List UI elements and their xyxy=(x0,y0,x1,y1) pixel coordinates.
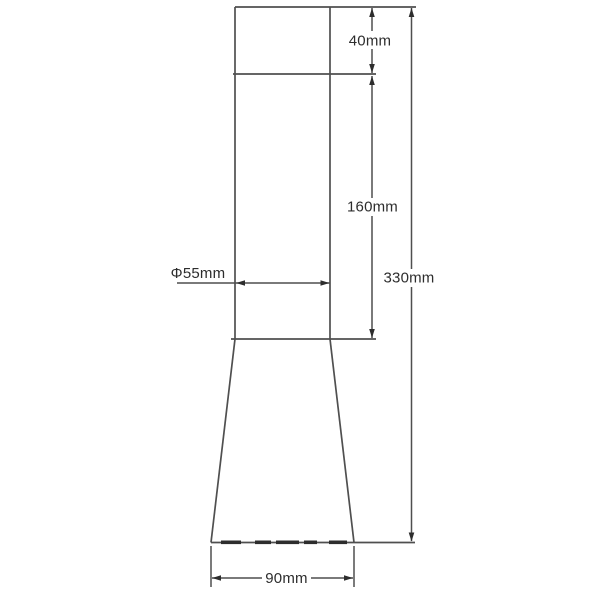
base-foot-dash xyxy=(329,541,347,545)
base-foot-dash xyxy=(221,541,241,545)
dim-diameter-arrow-left-icon xyxy=(236,280,245,286)
dim-90mm-arrow-right-icon xyxy=(344,575,353,581)
drawing-canvas: 40mm 160mm 330mm Φ55mm 90mm xyxy=(0,0,600,600)
base-foot-dash xyxy=(276,541,299,545)
dim-40mm-arrow-up-icon xyxy=(369,8,375,17)
cap-height-label: 40mm xyxy=(349,33,391,50)
dim-160mm-arrow-up-icon xyxy=(369,76,375,85)
base-left-slant xyxy=(211,339,235,543)
dimension-labels: 40mm 160mm 330mm Φ55mm 90mm xyxy=(171,33,435,588)
dim-40mm-arrow-down-icon xyxy=(369,64,375,73)
technical-drawing: 40mm 160mm 330mm Φ55mm 90mm xyxy=(0,0,600,600)
body-height-label: 160mm xyxy=(347,199,398,216)
base-right-slant xyxy=(330,339,354,543)
label-gaps xyxy=(262,31,435,587)
base-width-label: 90mm xyxy=(265,570,307,587)
dimension-arrowheads xyxy=(212,8,414,581)
dim-330mm-arrow-up-icon xyxy=(409,8,415,17)
dimension-lines xyxy=(177,8,412,587)
diameter-label: Φ55mm xyxy=(171,265,226,282)
dim-160mm-arrow-down-icon xyxy=(369,329,375,338)
dim-90mm-arrow-left-icon xyxy=(212,575,221,581)
base-foot-dash xyxy=(255,541,271,545)
total-height-label: 330mm xyxy=(383,270,434,287)
dim-330mm-arrow-down-icon xyxy=(409,533,415,542)
dim-diameter-arrow-right-icon xyxy=(321,280,330,286)
base-foot-dash xyxy=(304,541,317,545)
